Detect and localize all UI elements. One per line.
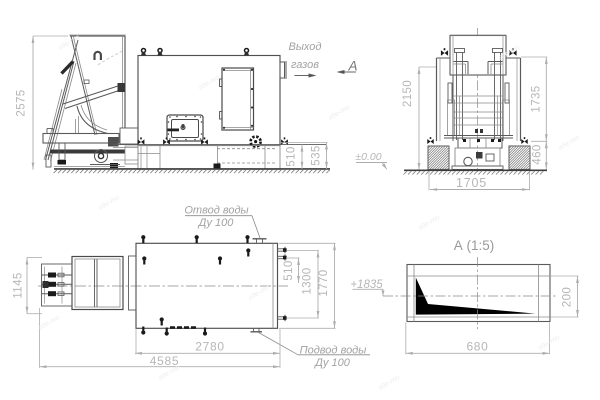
svg-text:2150: 2150 [402,80,414,107]
svg-text:2780: 2780 [195,340,225,354]
svg-text:Отвод воды: Отвод воды [184,205,248,217]
svg-text:А (1:5): А (1:5) [454,238,495,253]
svg-text:2575: 2575 [16,89,28,116]
svg-text:535: 535 [311,145,323,165]
svg-text:Ду 100: Ду 100 [313,357,351,369]
svg-text:510: 510 [283,260,295,280]
svg-text:1735: 1735 [531,85,543,112]
svg-text:1300: 1300 [302,267,314,294]
svg-text:200: 200 [562,287,574,307]
svg-text:Выход: Выход [288,41,321,53]
svg-text:510: 510 [286,146,298,166]
svg-text:1145: 1145 [13,272,25,298]
svg-text:А: А [347,59,357,74]
svg-text:Ду 100: Ду 100 [197,217,235,229]
svg-text:460: 460 [532,144,544,164]
svg-text:680: 680 [466,340,488,354]
svg-text:1770: 1770 [318,269,330,296]
svg-text:1705: 1705 [456,176,487,190]
svg-text:±0.00: ±0.00 [355,151,381,163]
svg-text:газов: газов [291,59,319,71]
